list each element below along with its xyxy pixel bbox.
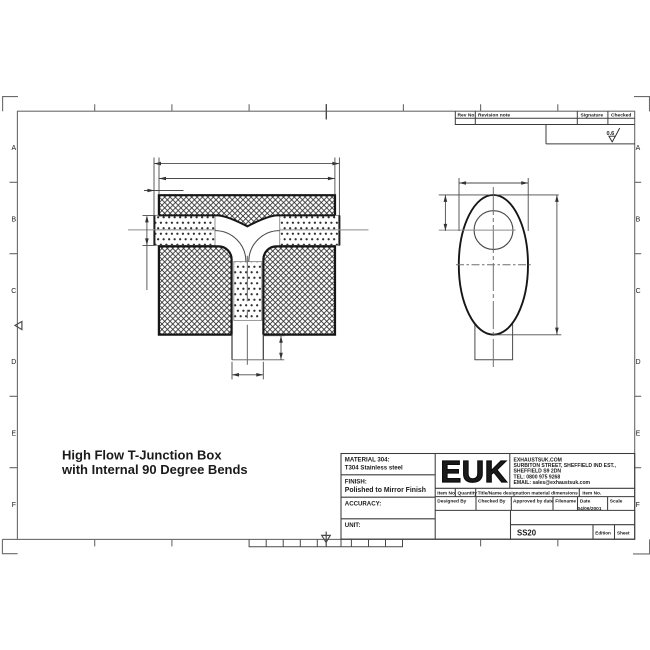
- svg-text:EUK: EUK: [441, 454, 508, 489]
- svg-text:Polished to Mirror Finish: Polished to Mirror Finish: [345, 487, 426, 494]
- svg-text:C: C: [11, 288, 16, 295]
- svg-text:Scale: Scale: [610, 499, 623, 505]
- svg-text:ACCURACY:: ACCURACY:: [345, 501, 381, 508]
- svg-text:Signature: Signature: [581, 113, 604, 119]
- svg-text:Date: Date: [580, 499, 591, 505]
- svg-text:E: E: [636, 431, 641, 438]
- svg-text:A: A: [636, 145, 641, 152]
- svg-text:UNIT:: UNIT:: [345, 522, 361, 529]
- svg-text:F: F: [12, 502, 16, 509]
- svg-text:Rev No: Rev No: [458, 113, 475, 119]
- svg-text:Item No.: Item No.: [582, 490, 601, 496]
- svg-text:Edition: Edition: [595, 531, 611, 536]
- svg-text:E: E: [11, 431, 16, 438]
- svg-text:with Internal 90 Degree Bends: with Internal 90 Degree Bends: [61, 462, 248, 477]
- svg-text:B: B: [636, 217, 641, 224]
- svg-text:MATERIAL 304:: MATERIAL 304:: [345, 457, 390, 464]
- svg-text:Checked By: Checked By: [478, 499, 506, 505]
- svg-text:Checked: Checked: [611, 113, 631, 119]
- svg-text:High Flow T-Junction Box: High Flow T-Junction Box: [62, 448, 222, 463]
- svg-text:D: D: [636, 359, 641, 366]
- svg-text:04/06/2001: 04/06/2001: [578, 506, 602, 512]
- svg-text:Sheet: Sheet: [617, 531, 630, 536]
- svg-text:Quantity: Quantity: [458, 490, 478, 496]
- svg-text:Revision note: Revision note: [478, 113, 510, 119]
- svg-text:EMAIL: sales@exhaustsuk.com: EMAIL: sales@exhaustsuk.com: [514, 480, 591, 486]
- svg-text:SS20: SS20: [517, 529, 537, 538]
- svg-text:D: D: [11, 359, 16, 366]
- svg-text:Approved by date: Approved by date: [513, 499, 554, 505]
- svg-text:Title/Name designation materia: Title/Name designation material dimensio…: [478, 490, 578, 496]
- svg-text:A: A: [11, 145, 16, 152]
- svg-text:Designed By: Designed By: [437, 499, 466, 505]
- svg-text:Item No: Item No: [437, 490, 455, 496]
- svg-text:Filename: Filename: [555, 499, 576, 505]
- svg-text:F: F: [636, 502, 640, 509]
- svg-text:B: B: [11, 217, 16, 224]
- svg-text:C: C: [636, 288, 641, 295]
- svg-text:FINISH:: FINISH:: [345, 478, 367, 485]
- svg-text:T304 Stainless steel: T304 Stainless steel: [345, 465, 403, 472]
